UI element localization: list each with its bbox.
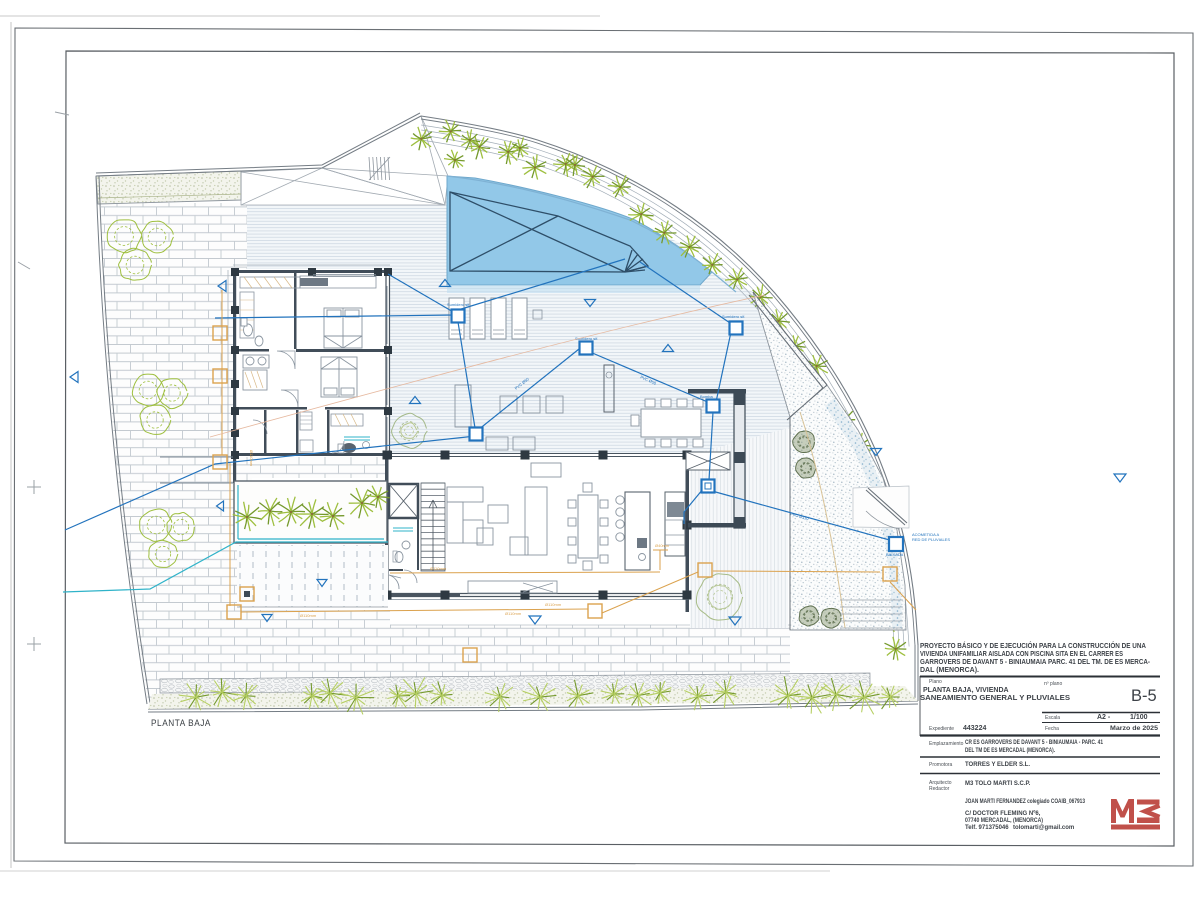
svg-text:Emplazamiento: Emplazamiento <box>929 741 964 747</box>
svg-text:VIVIENDA UNIFAMILIAR AISLAD: VIVIENDA UNIFAMILIAR AISLADA CON PISCINA… <box>920 651 1123 658</box>
svg-text:TORRES Y ELDER S.L.: TORRES Y ELDER S.L. <box>965 762 1030 768</box>
svg-text:BAIXADA: BAIXADA <box>886 552 904 557</box>
svg-text:DEL TM DE ES MERCADAL (MENORCA: DEL TM DE ES MERCADAL (MENORCA). <box>965 748 1055 754</box>
svg-text:Sumidero sif.: Sumidero sif. <box>447 302 470 307</box>
svg-text:1/100: 1/100 <box>1130 714 1148 721</box>
svg-text:07740 MERCADAL, (MENORCA): 07740 MERCADAL, (MENORCA) <box>965 818 1043 824</box>
svg-text:Fecha: Fecha <box>1045 726 1059 732</box>
svg-text:PLANTA BAJA: PLANTA BAJA <box>151 718 211 728</box>
svg-text:Ø110mm: Ø110mm <box>249 450 254 467</box>
svg-text:Sumidero sif.: Sumidero sif. <box>722 314 745 319</box>
svg-text:B-5: B-5 <box>1131 687 1157 705</box>
svg-text:Escala: Escala <box>1045 715 1060 721</box>
svg-text:Redactor: Redactor <box>929 786 950 792</box>
svg-text:Bomba: Bomba <box>700 394 713 399</box>
svg-text:Ø110mm: Ø110mm <box>430 566 447 571</box>
svg-text:Expediente: Expediente <box>929 726 954 732</box>
svg-text:Ø40mm: Ø40mm <box>655 543 670 548</box>
svg-text:RED DE PLUVIALES: RED DE PLUVIALES <box>912 537 950 542</box>
svg-text:Marzo de 2025: Marzo de 2025 <box>1110 726 1159 732</box>
svg-text:JOAN MARTI FERNANDEZ colegiado: JOAN MARTI FERNANDEZ colegiado COAIB_067… <box>965 799 1086 805</box>
svg-text:Ø110mm: Ø110mm <box>505 611 522 616</box>
svg-text:CR ES GARROVERS DE DAVANT 5 -: CR ES GARROVERS DE DAVANT 5 - BINIAUMAIA… <box>965 740 1104 746</box>
svg-text:Plano: Plano <box>929 679 942 685</box>
svg-text:GARROVERS DE DAVANT 5 - BINIAU: GARROVERS DE DAVANT 5 - BINIAUMAIA PARC.… <box>920 659 1151 666</box>
svg-text:C/ DOCTOR FLEMING Nº6,: C/ DOCTOR FLEMING Nº6, <box>965 811 1041 817</box>
svg-text:Ø110mm: Ø110mm <box>300 613 317 618</box>
svg-text:nº plano: nº plano <box>1044 681 1062 687</box>
svg-text:Promotora: Promotora <box>929 762 953 768</box>
svg-text:DAL (MENORCA).: DAL (MENORCA). <box>920 667 979 674</box>
svg-text:Ø110mm: Ø110mm <box>545 602 562 607</box>
svg-text:443224: 443224 <box>963 725 986 732</box>
svg-text:Telf. 971375046: Telf. 971375046 <box>965 825 1009 831</box>
svg-text:A2 -: A2 - <box>1097 714 1111 721</box>
svg-text:PROYECTO BÁSICO Y DE EJE: PROYECTO BÁSICO Y DE EJECUCIÓN PARA LA C… <box>920 641 1146 650</box>
svg-text:M3 TOLO MARTI S.C.P.: M3 TOLO MARTI S.C.P. <box>965 781 1031 787</box>
svg-text:SANEAMIENTO GENERAL Y PLUVIALE: SANEAMIENTO GENERAL Y PLUVIALES <box>920 695 1070 702</box>
svg-text:PLANTA BAJA, VIVIENDA: PLANTA BAJA, VIVIENDA <box>923 687 1009 694</box>
svg-text:tolomarti@gmail.com: tolomarti@gmail.com <box>1013 825 1074 831</box>
